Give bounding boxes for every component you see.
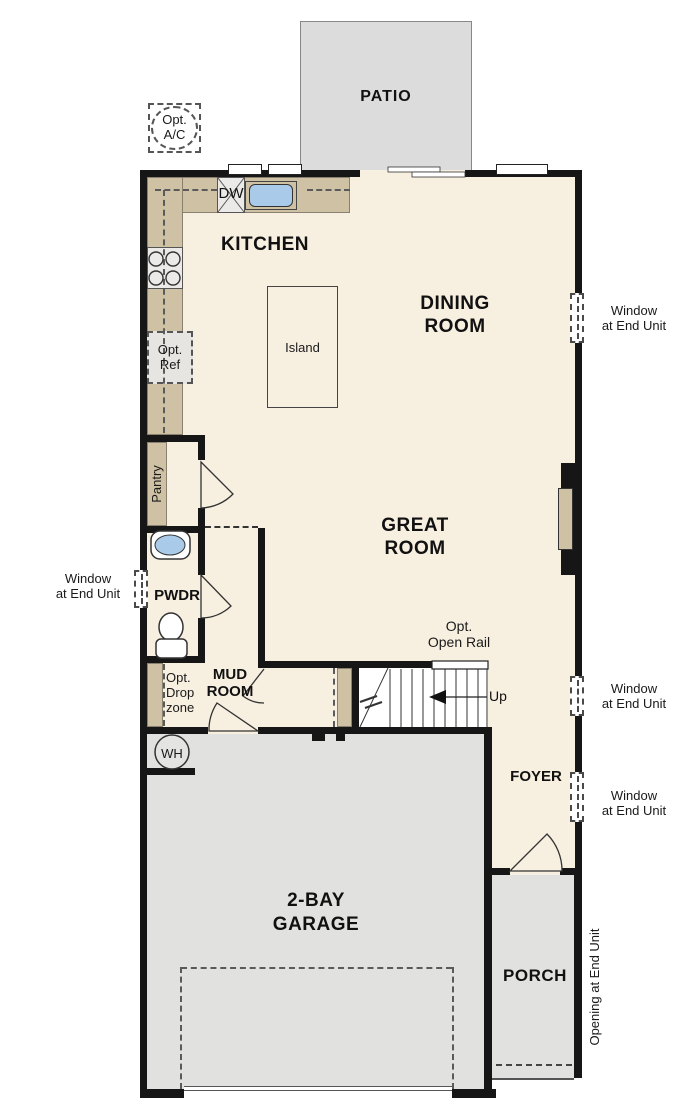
porch-edge-line — [492, 1078, 574, 1080]
window-mullion — [577, 680, 579, 712]
window-left-label: Window at End Unit — [42, 571, 134, 601]
foyer-area — [492, 727, 575, 868]
front-door-opening — [510, 868, 560, 875]
wall-post-tab-1 — [312, 734, 325, 741]
dining-room-label: DINING ROOM — [395, 292, 515, 338]
window-mullion — [577, 297, 579, 339]
stove — [147, 247, 183, 289]
mud-bench — [337, 668, 352, 727]
wall-mud-bottom-left — [140, 727, 208, 734]
wall-mud-bottom-right — [258, 727, 492, 734]
wall-pwdr-right-lower — [198, 618, 205, 663]
wall-pantry-right-upper — [198, 435, 205, 460]
wall-garage-bottom-left — [140, 1089, 184, 1098]
wall-left — [140, 170, 147, 1098]
patio-label: PATIO — [330, 88, 442, 106]
garage-door-zone-right — [452, 967, 454, 1089]
opt-drop-zone-label: Opt. Drop zone — [166, 670, 206, 715]
end-unit-window-foyer — [570, 772, 584, 822]
wall-post-tab-2 — [336, 734, 345, 741]
stairs-area — [359, 668, 488, 727]
opening-end-unit-label: Opening at End Unit — [587, 907, 601, 1067]
wall-porch-right — [574, 875, 582, 1078]
pwdr-label: PWDR — [142, 587, 212, 604]
wall-pwdr-right-upper — [198, 533, 205, 575]
mud-bench-dash — [333, 668, 335, 727]
opt-open-rail-label: Opt. Open Rail — [414, 618, 504, 650]
fireplace-insert — [558, 488, 573, 550]
end-unit-window-stairs — [570, 676, 584, 716]
wall-garage-right — [484, 727, 492, 1098]
dining-top-window — [496, 164, 548, 175]
window-right-label-3: Window at End Unit — [592, 788, 676, 818]
wall-foyer-bottom-right — [560, 868, 582, 875]
wall-stairs-left — [352, 668, 359, 727]
opt-ref-label: Opt. Ref — [147, 342, 193, 372]
kitchen-sink — [249, 184, 293, 207]
upper-cabinet-dash-right — [307, 189, 350, 191]
foyer-label: FOYER — [500, 768, 572, 785]
kitchen-label: KITCHEN — [195, 234, 335, 256]
wall-stairs-top — [258, 661, 432, 668]
dishwasher-label: DW — [217, 185, 245, 202]
garage-door-zone-left — [180, 967, 182, 1089]
upper-cabinet-dash-vert — [163, 190, 165, 433]
main-floor-area — [147, 177, 575, 727]
great-room-label: GREAT ROOM — [355, 514, 475, 560]
porch-edge-dash — [496, 1064, 572, 1066]
kitchen-counter-left — [147, 177, 183, 435]
wall-wh-bottom — [147, 768, 195, 775]
patio-door-opening — [360, 170, 465, 177]
wall-pwdr-top — [140, 526, 205, 533]
window-mullion — [577, 776, 579, 818]
kitchen-window-1 — [228, 164, 262, 175]
wall-pantry-right-lower — [198, 508, 205, 533]
wall-pantry-top — [140, 435, 205, 442]
window-right-label-1: Window at End Unit — [592, 303, 676, 333]
garage-door-zone-top — [181, 967, 452, 969]
porch-label: PORCH — [496, 966, 574, 986]
wh-label: WH — [155, 746, 189, 761]
wall-garage-bottom-right — [452, 1089, 496, 1098]
pantry-label: Pantry — [149, 442, 163, 526]
drop-zone-dash — [163, 664, 165, 726]
kitchen-window-2 — [268, 164, 302, 175]
wall-pwdr-bottom — [140, 656, 205, 663]
end-unit-window-dining — [570, 293, 584, 343]
window-right-label-2: Window at End Unit — [592, 681, 676, 711]
mud-room-label: MUD ROOM — [196, 666, 264, 700]
garage-door — [184, 1086, 452, 1091]
cased-opening-dash — [205, 526, 258, 528]
opt-ac-label: Opt. A/C — [148, 112, 201, 142]
wall-corridor — [258, 528, 265, 661]
up-label: Up — [489, 688, 519, 704]
garage-label: 2-BAY GARAGE — [246, 889, 386, 937]
mud-door-opening — [208, 727, 258, 734]
island-label: Island — [267, 340, 338, 355]
drop-zone-shelf — [147, 663, 163, 727]
floor-plan: PATIO Opt. A/C KITCHEN DW DINING ROOM Is… — [0, 0, 690, 1111]
